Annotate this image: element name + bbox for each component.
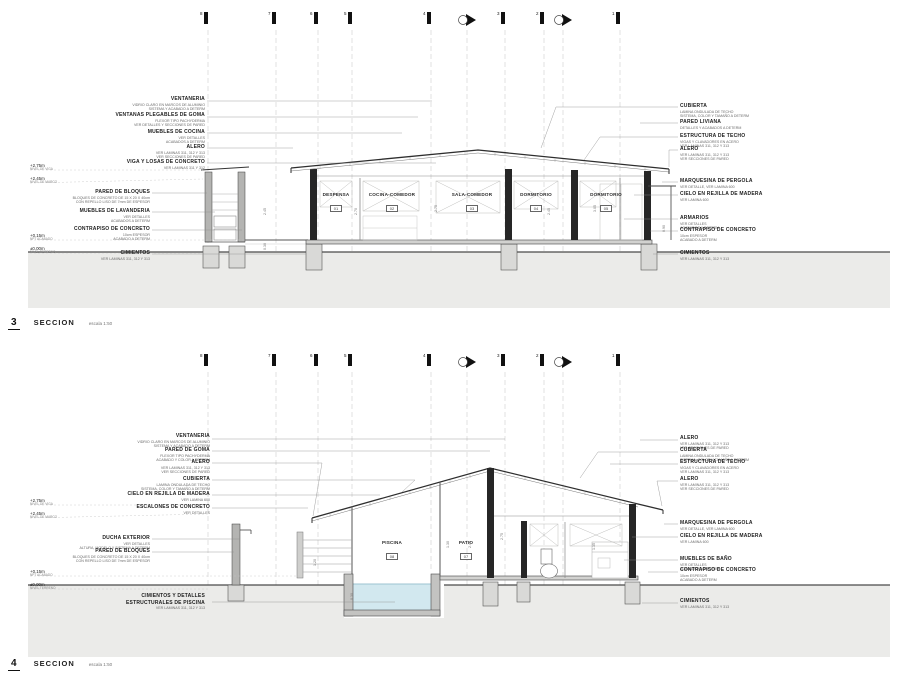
annotation-note: VER LAMINAS 311, 312 Y 313 bbox=[680, 257, 890, 262]
annotation-label: CIELO EN REJILLA DE MADERAVER LAMINA 600 bbox=[680, 533, 890, 544]
section-4-bathroom bbox=[541, 542, 629, 578]
grid-marker: 8 bbox=[200, 12, 208, 24]
grid-marker-bar bbox=[427, 12, 431, 24]
grid-marker: 5 bbox=[344, 12, 352, 24]
grid-marker-label: 7 bbox=[268, 354, 271, 359]
elevation-note: NIVEL DE MARCO bbox=[30, 181, 57, 185]
elevation-tag: ±0.00mNIVEL TERRENO bbox=[30, 246, 56, 255]
annotation-label: MARQUESINA DE PERGOLAVER DETALLE, VER LA… bbox=[680, 520, 890, 531]
grid-marker-bar bbox=[204, 354, 208, 366]
elevation-note: NIVEL DE MARCO bbox=[30, 516, 57, 520]
annotation-label: CONTRAPISO DE CONCRETO10cm ESPESORACABAD… bbox=[680, 227, 890, 243]
room-number: 04 bbox=[530, 205, 542, 212]
annotation-label: ALEROVER LAMINAS 311, 312 Y 313VER SECCI… bbox=[0, 144, 205, 160]
grid-marker: 2 bbox=[536, 12, 544, 24]
section-name: SECCION bbox=[34, 318, 75, 327]
elevation-tag: +0.15mNPT ACABADO bbox=[30, 233, 53, 242]
annotation-label: PARED DE BLOQUESBLOQUES DE CONCRETO DE 1… bbox=[0, 189, 150, 205]
room-number: 07 bbox=[460, 553, 472, 560]
elevation-tag: +0.15mNPT ACABADO bbox=[30, 569, 53, 578]
room-label: DORMITORIO05 bbox=[576, 192, 636, 215]
grid-marker: 4 bbox=[423, 12, 431, 24]
annotation-label: CONTRAPISO DE CONCRETO10cm ESPESORACABAD… bbox=[680, 567, 890, 583]
grid-marker-label: 3 bbox=[497, 12, 500, 17]
dimension-text: 1.20 bbox=[313, 559, 317, 566]
grid-marker-bar bbox=[501, 12, 505, 24]
dimension-text: 2.45 bbox=[547, 208, 551, 215]
elevation-tag: +2.75mNIVEL DE VIGA bbox=[30, 163, 53, 172]
room-name: COCINA-COMEDOR bbox=[357, 192, 427, 197]
elevation-note: NIVEL DE VIGA bbox=[30, 503, 53, 507]
annotation-label: PARED LIVIANADETALLES Y ACABADOS A DETER… bbox=[680, 119, 890, 130]
grid-marker: 4 bbox=[423, 354, 431, 366]
annotation-note: VER LAMINAS 311, 312 Y 313 bbox=[95, 606, 205, 611]
annotation-note: VER LAMINAS 311, 312 Y 313 bbox=[680, 605, 890, 610]
annotation-label: MUEBLES DE LAVANDERIAVER DETALLESACABADO… bbox=[0, 208, 150, 224]
grid-marker-label: 1 bbox=[612, 354, 615, 359]
grid-marker-label: 6 bbox=[310, 354, 313, 359]
section-3-laundry-structure bbox=[201, 167, 308, 244]
room-label: PISCINA08 bbox=[362, 540, 422, 563]
section-4-pool bbox=[344, 572, 444, 618]
grid-marker-label: 5 bbox=[344, 354, 347, 359]
dimension-text: 0.30 bbox=[263, 243, 267, 250]
section-number: 4 bbox=[8, 658, 20, 671]
annotation-note: ACABADO A DETERM bbox=[680, 578, 890, 583]
grid-marker-bar bbox=[540, 354, 544, 366]
section-number: 3 bbox=[8, 317, 20, 330]
room-name: DORMITORIO bbox=[576, 192, 636, 197]
grid-marker-bar bbox=[272, 12, 276, 24]
section-title: 3 SECCION escala 1:50 bbox=[8, 317, 112, 330]
annotation-note: VER SECCIONES DE PARED bbox=[680, 487, 890, 492]
annotation-label: CIMIENTOS Y DETALLES ESTRUCTURALES DE PI… bbox=[95, 593, 205, 611]
elevation-note: NIVEL TERRENO bbox=[30, 251, 56, 255]
dimension-text: 2.70 bbox=[354, 208, 358, 215]
annotation-note: VER SECCIONES DE PARED bbox=[680, 157, 890, 162]
annotation-title: CIMIENTOS Y DETALLES ESTRUCTURALES DE PI… bbox=[95, 593, 205, 606]
grid-marker-bar bbox=[272, 354, 276, 366]
room-number: 05 bbox=[600, 205, 612, 212]
annotation-label: CIELO EN REJILLA DE MADERAVER LAMINA 600 bbox=[680, 191, 890, 202]
grid-marker-bar bbox=[348, 12, 352, 24]
annotation-label: MARQUESINA DE PERGOLAVER DETALLE, VER LA… bbox=[680, 178, 890, 189]
grid-marker-label: 4 bbox=[423, 12, 426, 17]
grid-marker-bar bbox=[616, 354, 620, 366]
elevation-tag: ±0.00mNIVEL TERRENO bbox=[30, 582, 56, 591]
architectural-sheet: { "palette":{"ground":"#ebebe9","water":… bbox=[0, 0, 920, 689]
grid-marker-label: 6 bbox=[310, 12, 313, 17]
annotation-label: ESTRUCTURA DE TECHOVIGAS Y CLAVADORES EN… bbox=[680, 459, 890, 475]
annotation-label: CIMIENTOSVER LAMINAS 311, 312 Y 313 bbox=[0, 250, 150, 261]
annotation-note: DETALLES Y ACABADOS A DETERM bbox=[680, 126, 890, 131]
grid-marker-bar bbox=[501, 354, 505, 366]
elevation-note: NPT ACABADO bbox=[30, 238, 53, 242]
elevation-note: NIVEL TERRENO bbox=[30, 587, 56, 591]
section-scale: escala 1:50 bbox=[89, 662, 113, 667]
elevation-tag: +2.45mNIVEL DE MARCO bbox=[30, 511, 57, 520]
section-4-cut-markers bbox=[459, 356, 573, 368]
annotation-note: VER DETALLE, VER LAMINA 600 bbox=[680, 527, 890, 532]
dimension-text: 1.35 bbox=[592, 543, 596, 550]
dimension-text: 1.30 bbox=[446, 541, 450, 548]
grid-marker-label: 2 bbox=[536, 354, 539, 359]
grid-marker: 6 bbox=[310, 354, 318, 366]
grid-marker: 7 bbox=[268, 354, 276, 366]
grid-marker-label: 1 bbox=[612, 12, 615, 17]
room-name: SALA-COMEDOR bbox=[437, 192, 507, 197]
annotation-note: VER LAMINAS 311, 312 Y 313 bbox=[680, 470, 890, 475]
grid-marker-label: 5 bbox=[344, 12, 347, 17]
annotation-note: VER LAMINAS 311, 312 Y 313 bbox=[0, 257, 150, 262]
grid-marker: 3 bbox=[497, 354, 505, 366]
grid-marker: 5 bbox=[344, 354, 352, 366]
section-4-rafter-ticks bbox=[330, 472, 625, 517]
grid-marker: 7 bbox=[268, 12, 276, 24]
room-label: DORMITORIO04 bbox=[506, 192, 566, 215]
grid-marker-label: 8 bbox=[200, 354, 203, 359]
annotation-note: VER DETALLES Y SECCIONES DE PARED bbox=[0, 123, 205, 128]
grid-marker-label: 3 bbox=[497, 354, 500, 359]
room-number: 01 bbox=[330, 205, 342, 212]
room-label: PATIO07 bbox=[436, 540, 496, 563]
annotation-label: VENTANERIAVIDRIO CLARO EN MARCOS DE ALUM… bbox=[0, 96, 205, 112]
grid-marker-bar bbox=[540, 12, 544, 24]
grid-marker-bar bbox=[314, 12, 318, 24]
room-name: DORMITORIO bbox=[506, 192, 566, 197]
grid-marker-bar bbox=[616, 12, 620, 24]
dimension-text: 0.90 bbox=[662, 225, 666, 232]
grid-marker-bar bbox=[427, 354, 431, 366]
elevation-tag: +2.75mNIVEL DE VIGA bbox=[30, 498, 53, 507]
room-name: PISCINA bbox=[362, 540, 422, 545]
annotation-label: CUBIERTALAMINA ONDULADA DE TECHOSISTEMA,… bbox=[680, 103, 890, 119]
grid-marker: 6 bbox=[310, 12, 318, 24]
grid-marker-label: 4 bbox=[423, 354, 426, 359]
annotation-note: CON REPELLO LISO DE 7mm DE ESPESOR bbox=[0, 200, 150, 205]
grid-marker-bar bbox=[348, 354, 352, 366]
room-label: COCINA-COMEDOR02 bbox=[357, 192, 427, 215]
annotation-note: ACABADO A DETERM bbox=[680, 238, 890, 243]
grid-marker: 8 bbox=[200, 354, 208, 366]
dimension-text: 2.75 bbox=[500, 533, 504, 540]
annotation-label: CIMIENTOSVER LAMINAS 311, 312 Y 313 bbox=[680, 598, 890, 609]
room-name: PATIO bbox=[436, 540, 496, 545]
annotation-label: PARED DE BLOQUESBLOQUES DE CONCRETO DE 1… bbox=[0, 548, 150, 564]
elevation-note: NIVEL DE VIGA bbox=[30, 168, 53, 172]
room-number: 03 bbox=[466, 205, 478, 212]
grid-marker-label: 8 bbox=[200, 12, 203, 17]
grid-marker-bar bbox=[314, 354, 318, 366]
annotation-label: VENTANAS PLEGABLES DE GOMAFLEXOR TIPO PA… bbox=[0, 112, 205, 128]
grid-marker-label: 2 bbox=[536, 12, 539, 17]
annotation-note: VER LAMINA 600 bbox=[680, 198, 890, 203]
section-name: SECCION bbox=[34, 659, 75, 668]
grid-marker: 3 bbox=[497, 12, 505, 24]
grid-marker-label: 7 bbox=[268, 12, 271, 17]
annotation-note: VER LAMINA 600 bbox=[680, 540, 890, 545]
annotation-label: CONTRAPISO DE CONCRETO10cm ESPESORACABAD… bbox=[0, 226, 150, 242]
annotation-label: ALEROVER LAMINAS 311, 312 Y 313VER SECCI… bbox=[680, 146, 890, 162]
annotation-label: MUEBLES DE COCINAVER DETALLESACABADOS A … bbox=[0, 129, 205, 145]
section-scale: escala 1:50 bbox=[89, 321, 113, 326]
dimension-text: 2.45 bbox=[263, 208, 267, 215]
dimension-text: 2.45 bbox=[468, 541, 472, 548]
grid-marker: 2 bbox=[536, 354, 544, 366]
section-3-cut-markers bbox=[459, 14, 573, 26]
annotation-note: CON REPELLO LISO DE 7mm DE ESPESOR bbox=[0, 559, 150, 564]
annotation-label: CUBIERTALAMINA ONDULADA DE TECHOSISTEMA,… bbox=[5, 476, 210, 492]
annotation-label: CIMIENTOSVER LAMINAS 311, 312 Y 313 bbox=[680, 250, 890, 261]
dimension-text: 3.05 bbox=[593, 205, 597, 212]
annotation-label: ALEROVER LAMINAS 311, 312 Y 313VER SECCI… bbox=[5, 459, 210, 475]
annotation-note: ACABADOS A DETERM bbox=[0, 219, 150, 224]
annotation-note: VER SECCIONES DE PARED bbox=[5, 470, 210, 475]
elevation-note: NPT ACABADO bbox=[30, 574, 53, 578]
elevation-tag: +2.45mNIVEL DE MARCO bbox=[30, 176, 57, 185]
dimension-text: 0.30 bbox=[350, 593, 354, 600]
grid-marker: 1 bbox=[612, 354, 620, 366]
section-title: 4 SECCION escala 1:50 bbox=[8, 658, 112, 671]
room-label: SALA-COMEDOR03 bbox=[437, 192, 507, 215]
grid-marker: 1 bbox=[612, 12, 620, 24]
annotation-label: ALEROVER LAMINAS 311, 312 Y 313VER SECCI… bbox=[680, 476, 890, 492]
room-number: 08 bbox=[386, 553, 398, 560]
grid-marker-bar bbox=[204, 12, 208, 24]
room-number: 02 bbox=[386, 205, 398, 212]
dimension-text: 2.75 bbox=[434, 205, 438, 212]
annotation-note: VER DETALLE, VER LAMINA 600 bbox=[680, 185, 890, 190]
annotation-note: ACABADO A DETERM bbox=[0, 237, 150, 242]
